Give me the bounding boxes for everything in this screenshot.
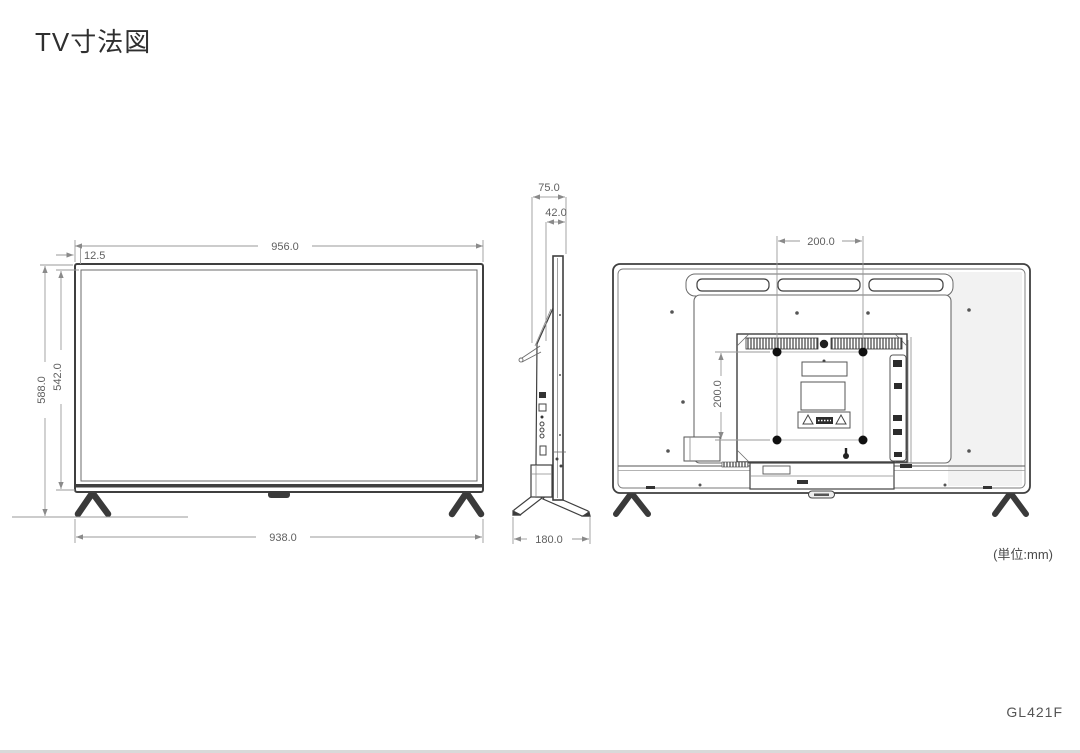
dim-front-height-panel: 542.0 (52, 363, 64, 391)
tv-dimension-sheet: TV寸法図 (0, 0, 1080, 753)
dim-front-bezel: 12.5 (84, 250, 105, 262)
unit-note: (単位:mm) (993, 547, 1053, 562)
dim-side-stand-depth: 180.0 (535, 534, 563, 546)
dim-front-width: 956.0 (271, 241, 299, 253)
dim-side-depth-panel: 42.0 (545, 207, 566, 219)
back-right-foot (995, 495, 1026, 514)
front-right-foot (452, 495, 481, 514)
dim-front-stand-width: 938.0 (269, 532, 297, 544)
back-labels (801, 362, 847, 410)
front-view (75, 264, 483, 514)
model-number: GL421F (1006, 704, 1063, 720)
front-logo-sensor (268, 491, 290, 498)
dim-front-height-total: 588.0 (36, 376, 48, 404)
back-av-connector (798, 412, 850, 428)
back-view (613, 264, 1030, 514)
side-panel (553, 256, 563, 500)
back-vent-slots (697, 279, 943, 291)
front-bottom-strip (76, 484, 482, 488)
dimension-drawing: 956.0 12.5 588.0 542.0 938.0 75.0 42.0 1… (0, 0, 1080, 753)
back-side-port-strip (890, 355, 906, 461)
back-left-foot (616, 495, 648, 514)
dim-back-vesa-width: 200.0 (807, 236, 835, 248)
side-stand-column (531, 465, 552, 497)
dim-back-vesa-height: 200.0 (712, 380, 724, 408)
back-logo (809, 491, 835, 498)
back-small-box (684, 437, 720, 461)
front-screen (81, 270, 477, 481)
side-view (513, 256, 590, 516)
back-shading (948, 272, 1022, 486)
front-left-foot (78, 495, 108, 514)
dim-side-depth-total: 75.0 (538, 182, 559, 194)
